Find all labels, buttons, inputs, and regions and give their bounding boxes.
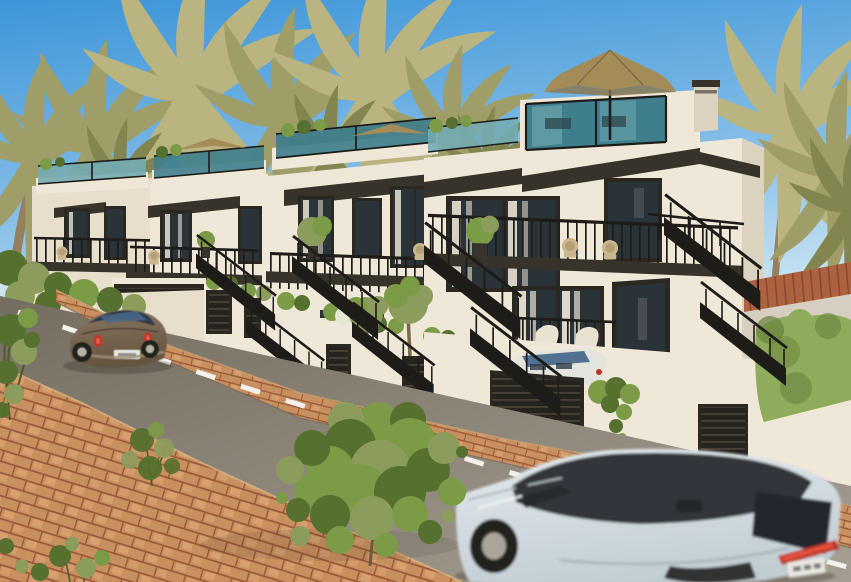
- taillight: [596, 369, 602, 375]
- chimney: [692, 80, 720, 132]
- wicker-chair: [602, 240, 618, 260]
- wicker-chair: [56, 246, 67, 260]
- render-image: [0, 0, 851, 582]
- slatted-panel: [206, 290, 232, 334]
- wicker-chair: [148, 250, 160, 264]
- townhouse-street-render: [0, 0, 851, 582]
- wicker-chair: [562, 238, 578, 258]
- roof-terrace: [526, 96, 666, 150]
